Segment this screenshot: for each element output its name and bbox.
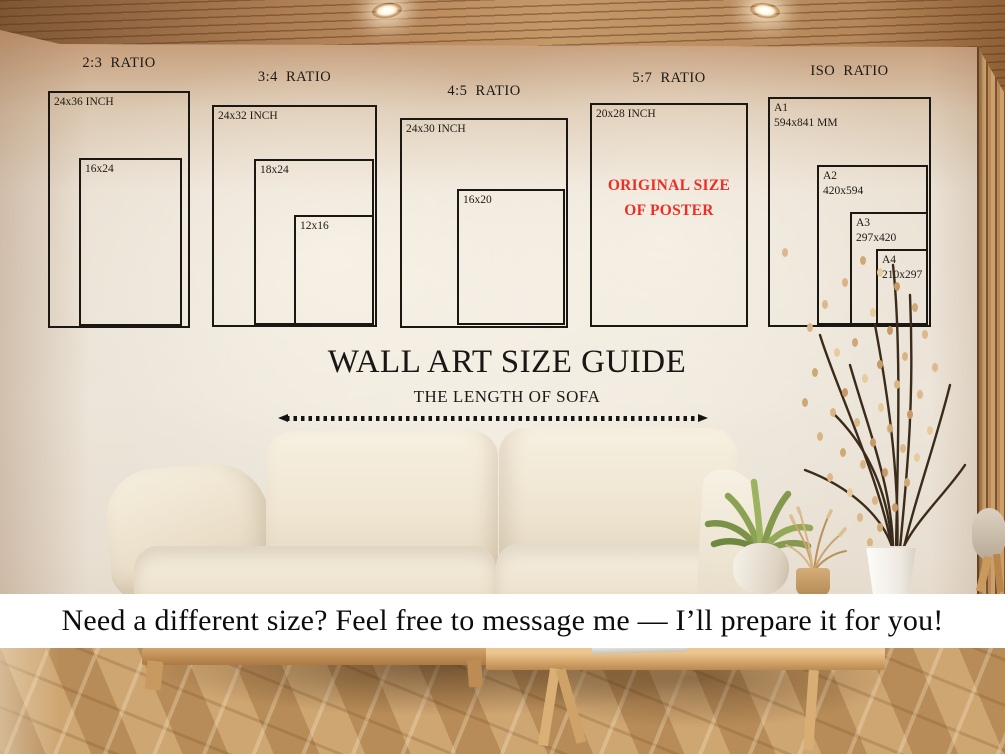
size-box-16x20: 16x20 <box>457 189 565 325</box>
original-size-note-line1: ORIGINAL SIZE <box>592 173 746 198</box>
size-box-20x28-original: 20x28 INCH ORIGINAL SIZE OF POSTER <box>590 103 748 327</box>
wall-art-size-guide-image: 2:3 RATIO 24x36 INCH 16x24 3:4 RATIO 24x… <box>0 0 1005 754</box>
size-label: 24x32 INCH <box>218 109 278 124</box>
grass-pot <box>796 568 830 596</box>
size-label: 12x16 <box>300 219 329 234</box>
side-stool <box>972 508 1005 560</box>
size-label: 18x24 <box>260 163 289 178</box>
size-box-12x16: 12x16 <box>294 215 374 325</box>
message-banner: Need a different size? Feel free to mess… <box>0 594 1005 648</box>
original-size-note: ORIGINAL SIZE OF POSTER <box>592 173 746 223</box>
arrow-right-icon <box>698 414 708 422</box>
page-title: WALL ART SIZE GUIDE <box>250 344 764 381</box>
white-planter <box>866 546 916 595</box>
sofa-leg <box>467 660 483 688</box>
ratio-title-3-4: 3:4 RATIO <box>212 69 377 86</box>
ratio-title-iso: ISO RATIO <box>768 63 931 80</box>
size-label: A2420x594 <box>823 169 863 199</box>
size-label: 16x24 <box>85 162 114 177</box>
sofa-seat-cushion-left <box>134 546 496 595</box>
size-label: A1594x841 MM <box>774 101 838 131</box>
branch-blossoms <box>782 248 788 257</box>
ratio-title-4-5: 4:5 RATIO <box>400 83 568 100</box>
dotted-line <box>286 416 700 421</box>
size-label: 24x30 INCH <box>406 122 466 137</box>
sofa-length-arrow <box>278 414 708 423</box>
ratio-title-5-7: 5:7 RATIO <box>590 70 748 87</box>
sofa-wood-base <box>142 648 492 665</box>
size-label: 16x20 <box>463 193 492 208</box>
size-box-16x24: 16x24 <box>79 158 182 326</box>
banner-text: Need a different size? Feel free to mess… <box>62 604 944 638</box>
size-label: 20x28 INCH <box>596 107 656 122</box>
original-size-note-line2: OF POSTER <box>592 198 746 223</box>
sofa-length-caption: THE LENGTH OF SOFA <box>250 387 764 407</box>
ratio-title-2-3: 2:3 RATIO <box>48 55 190 72</box>
size-label: 24x36 INCH <box>54 95 114 110</box>
sofa-leg <box>145 660 164 691</box>
dried-branches <box>775 235 975 565</box>
